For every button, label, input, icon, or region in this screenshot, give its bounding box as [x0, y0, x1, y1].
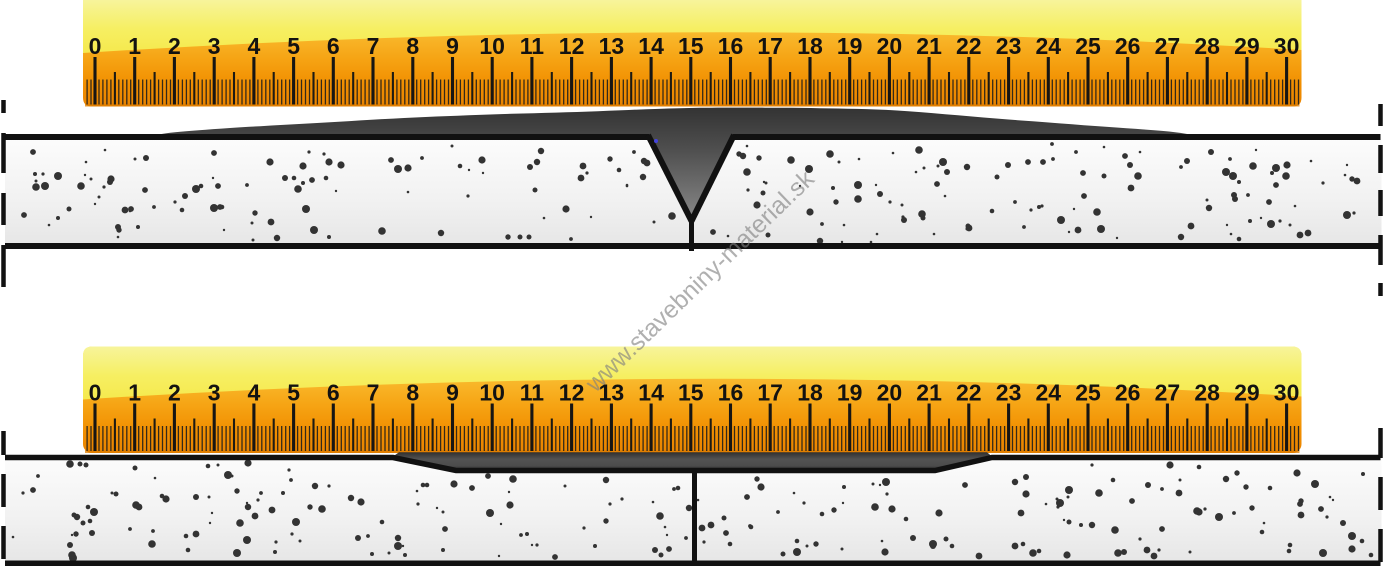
svg-text:28: 28 — [1194, 380, 1220, 406]
svg-text:14: 14 — [638, 33, 664, 59]
svg-text:5: 5 — [287, 33, 300, 59]
svg-text:3: 3 — [208, 380, 221, 406]
svg-text:11: 11 — [520, 33, 545, 59]
svg-text:10: 10 — [479, 33, 505, 59]
svg-text:22: 22 — [956, 33, 982, 59]
svg-text:27: 27 — [1155, 380, 1181, 406]
svg-text:22: 22 — [956, 380, 982, 406]
svg-text:23: 23 — [996, 380, 1022, 406]
svg-text:8: 8 — [406, 33, 419, 59]
svg-text:5: 5 — [287, 380, 300, 406]
svg-text:13: 13 — [599, 33, 625, 59]
svg-text:17: 17 — [757, 33, 783, 59]
svg-text:27: 27 — [1155, 33, 1181, 59]
svg-text:15: 15 — [678, 33, 704, 59]
svg-text:25: 25 — [1075, 380, 1101, 406]
svg-text:0: 0 — [89, 33, 102, 59]
svg-text:26: 26 — [1115, 33, 1141, 59]
svg-text:0: 0 — [89, 380, 102, 406]
svg-text:1: 1 — [128, 380, 141, 406]
svg-text:4: 4 — [248, 380, 261, 406]
svg-text:28: 28 — [1194, 33, 1220, 59]
svg-text:7: 7 — [367, 380, 380, 406]
svg-text:3: 3 — [208, 33, 221, 59]
svg-text:9: 9 — [446, 33, 459, 59]
svg-text:30: 30 — [1274, 380, 1300, 406]
svg-text:12: 12 — [559, 380, 585, 406]
svg-text:2: 2 — [168, 33, 181, 59]
svg-text:12: 12 — [559, 33, 585, 59]
svg-text:11: 11 — [520, 380, 545, 406]
svg-text:17: 17 — [757, 380, 783, 406]
svg-text:29: 29 — [1234, 380, 1260, 406]
svg-text:7: 7 — [367, 33, 380, 59]
svg-text:16: 16 — [718, 380, 744, 406]
svg-text:15: 15 — [678, 380, 704, 406]
svg-text:18: 18 — [797, 33, 823, 59]
svg-text:24: 24 — [1036, 33, 1062, 59]
svg-text:21: 21 — [916, 380, 942, 406]
svg-text:26: 26 — [1115, 380, 1141, 406]
svg-text:8: 8 — [406, 380, 419, 406]
svg-text:20: 20 — [877, 380, 903, 406]
svg-text:6: 6 — [327, 33, 340, 59]
svg-text:1: 1 — [128, 33, 141, 59]
svg-text:21: 21 — [916, 33, 942, 59]
svg-text:16: 16 — [718, 33, 744, 59]
svg-text:20: 20 — [877, 33, 903, 59]
svg-text:6: 6 — [327, 380, 340, 406]
svg-text:23: 23 — [996, 33, 1022, 59]
svg-text:24: 24 — [1036, 380, 1062, 406]
svg-text:2: 2 — [168, 380, 181, 406]
svg-text:19: 19 — [837, 33, 863, 59]
svg-text:9: 9 — [446, 380, 459, 406]
svg-text:25: 25 — [1075, 33, 1101, 59]
svg-text:4: 4 — [248, 33, 261, 59]
svg-text:10: 10 — [479, 380, 505, 406]
svg-text:14: 14 — [638, 380, 664, 406]
svg-text:18: 18 — [797, 380, 823, 406]
svg-text:19: 19 — [837, 380, 863, 406]
svg-text:30: 30 — [1274, 33, 1300, 59]
svg-text:29: 29 — [1234, 33, 1260, 59]
